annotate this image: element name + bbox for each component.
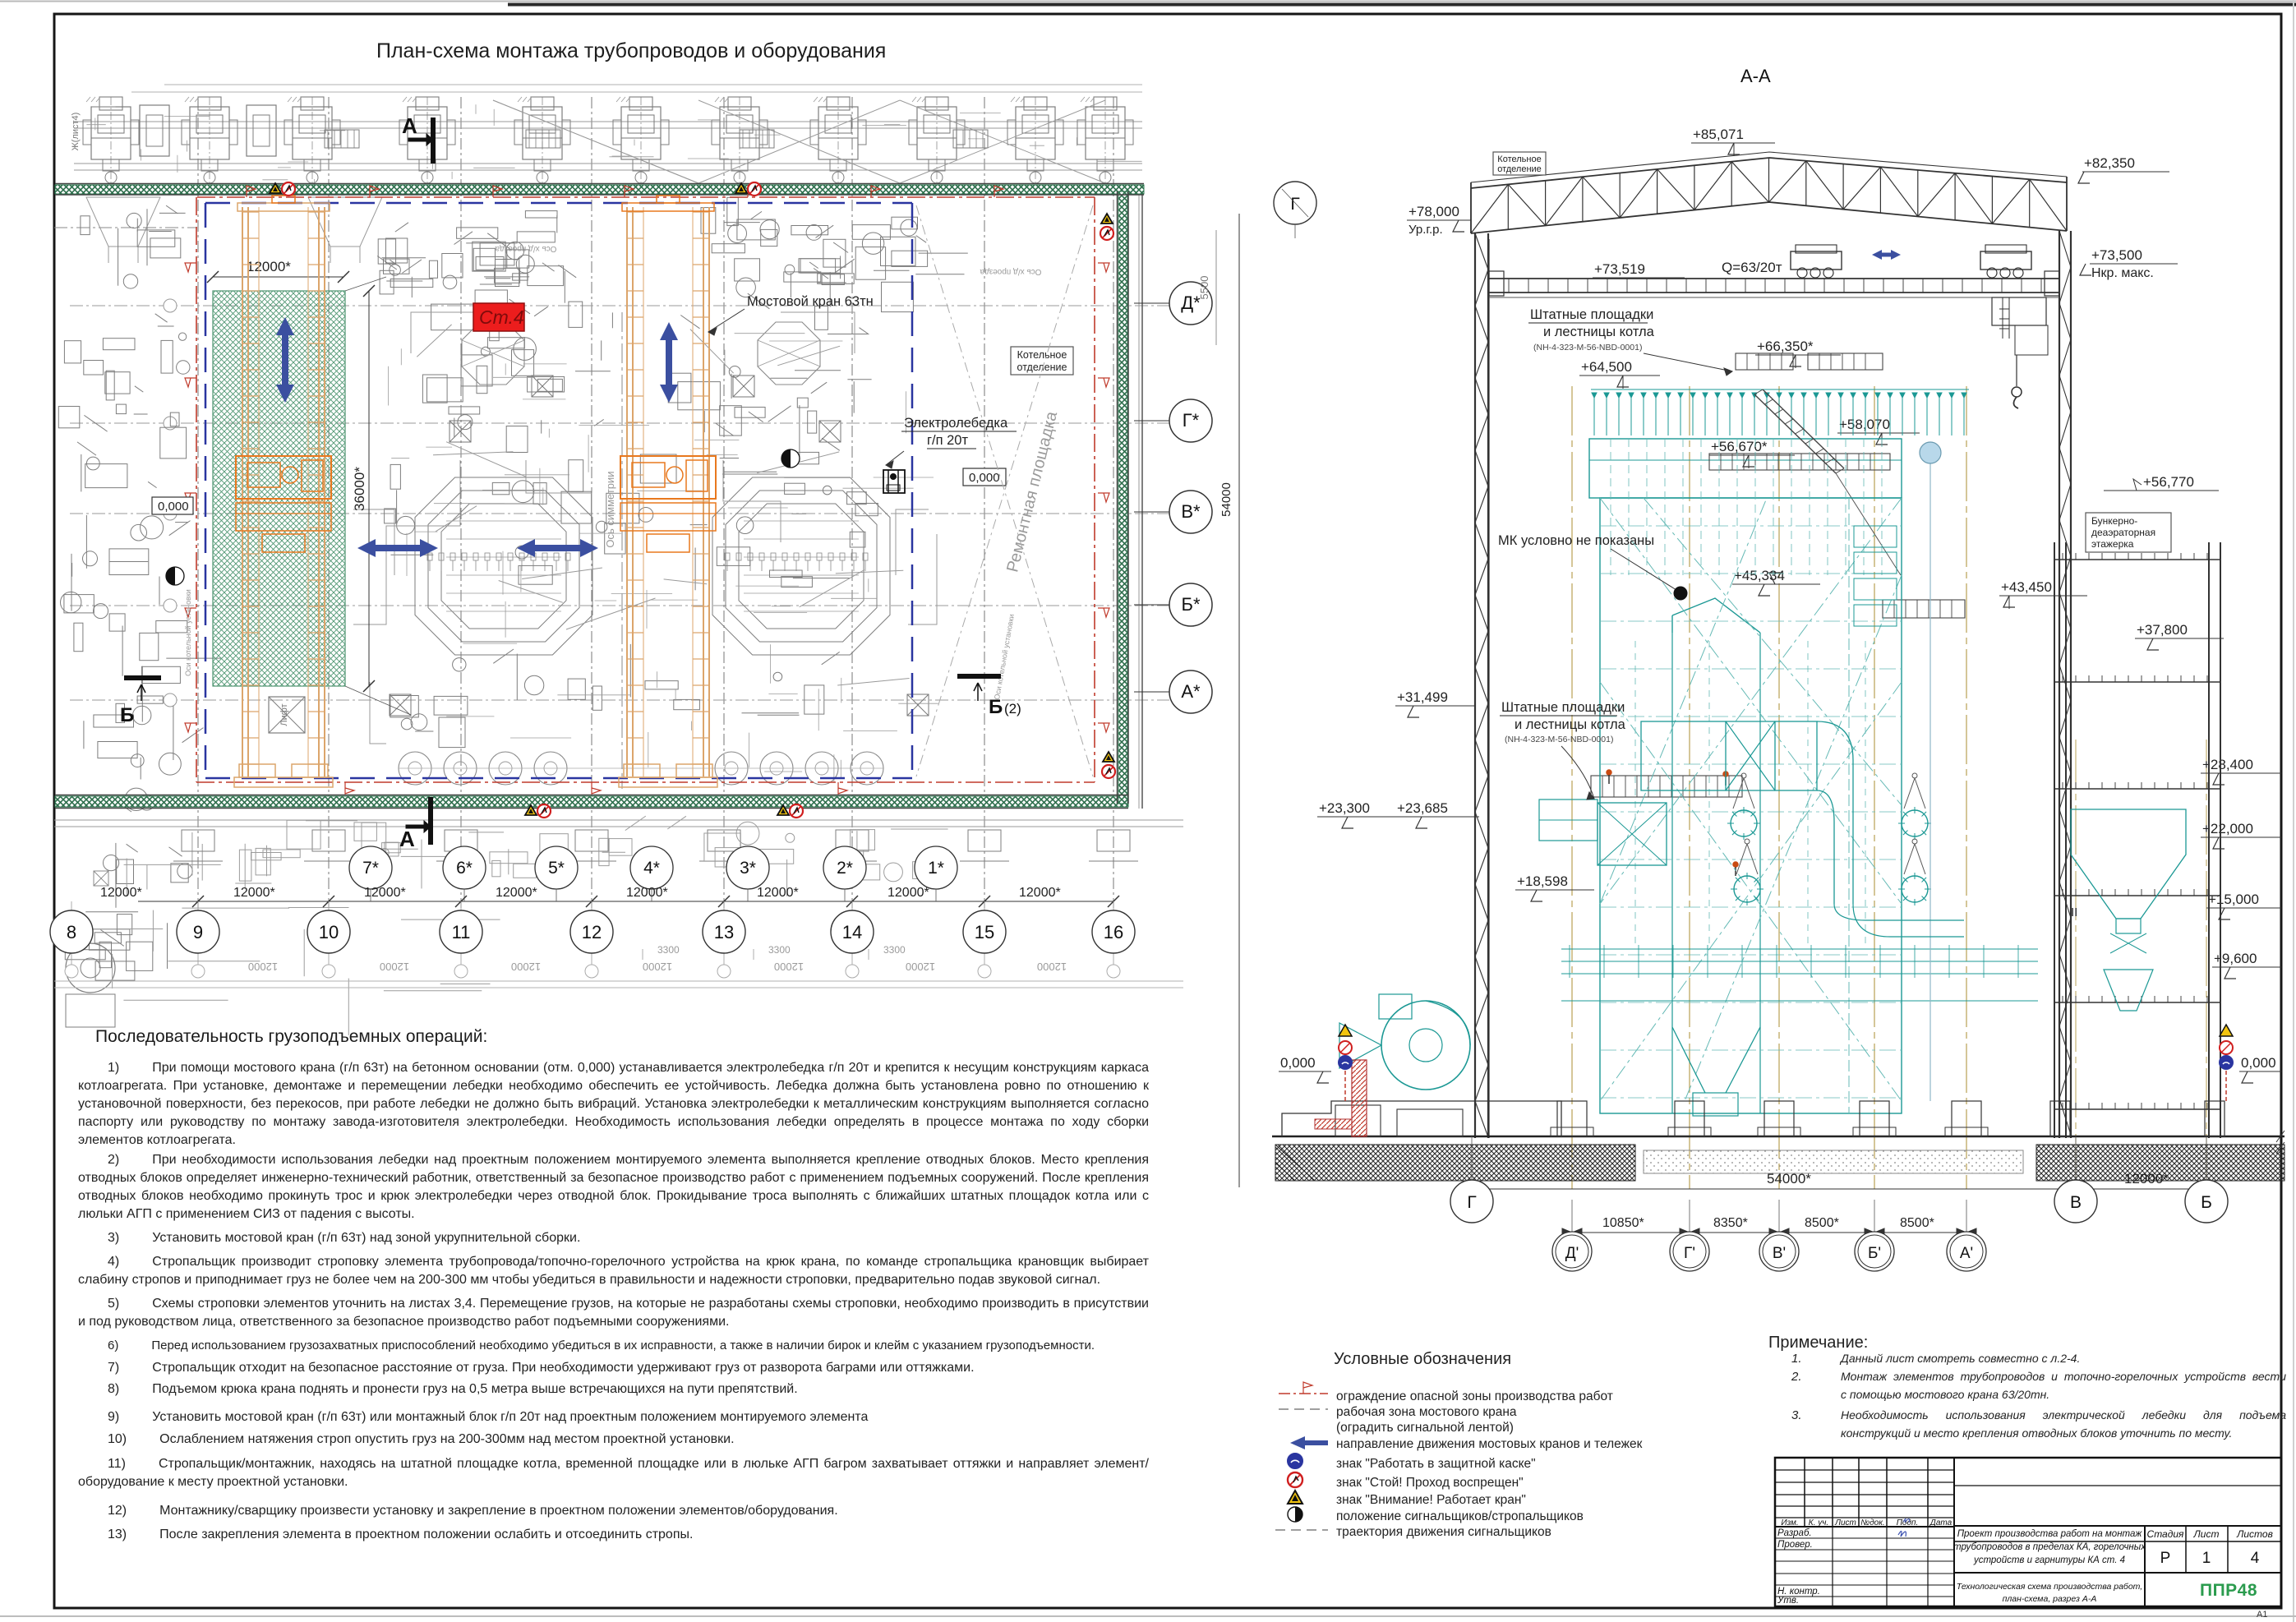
svg-text:Провер.: Провер. (1777, 1540, 1813, 1550)
svg-text:10850*: 10850* (1602, 1216, 1644, 1230)
svg-text:3300: 3300 (883, 944, 906, 956)
svg-text:положение сигнальщиков/стропал: положение сигнальщиков/стропальщиков (1336, 1509, 1584, 1523)
svg-text:14: 14 (842, 922, 862, 942)
svg-text:Стадия: Стадия (2147, 1528, 2185, 1540)
svg-text:В': В' (1773, 1245, 1786, 1262)
svg-text:12000*: 12000* (888, 886, 929, 900)
svg-text:8: 8 (67, 922, 76, 942)
svg-text:+66,350*: +66,350* (1757, 339, 1814, 354)
svg-text:+22,000: +22,000 (2202, 821, 2253, 836)
svg-text:Д': Д' (1565, 1245, 1579, 1262)
svg-text:Р: Р (2160, 1550, 2171, 1567)
svg-text:Утв.: Утв. (1777, 1596, 1799, 1606)
svg-text:+45,334: +45,334 (1734, 568, 1785, 583)
svg-text:Г': Г' (1684, 1245, 1695, 1262)
svg-text:Q=63/20т: Q=63/20т (1722, 260, 1782, 275)
svg-text:Примечание:: Примечание: (1768, 1334, 1868, 1352)
svg-text:12000*: 12000* (626, 886, 668, 900)
svg-text:Б*: Б* (1182, 594, 1201, 615)
svg-text:12000: 12000 (774, 961, 804, 973)
svg-text:отделение: отделение (1497, 164, 1542, 174)
svg-text:(оградить сигнальной лентой): (оградить сигнальной лентой) (1336, 1421, 1514, 1435)
svg-text:3300: 3300 (768, 944, 791, 956)
svg-text:А: А (399, 827, 415, 851)
svg-text:54000: 54000 (1219, 482, 1233, 517)
svg-text:Ось симметрии: Ось симметрии (604, 471, 616, 547)
svg-text:знак "Работать в защитной каск: знак "Работать в защитной каске" (1336, 1457, 1536, 1471)
svg-text:+73,519: +73,519 (1594, 261, 1645, 277)
svg-text:Изм.: Изм. (1781, 1518, 1798, 1528)
svg-text:Б: Б (120, 704, 134, 726)
svg-text:План-схема монтажа трубопровод: План-схема монтажа трубопроводов и обору… (376, 39, 886, 62)
svg-text:ограждение опасной зоны произв: ограждение опасной зоны производства раб… (1336, 1389, 1613, 1403)
svg-text:II: II (2071, 905, 2077, 919)
svg-text:+85,071: +85,071 (1693, 127, 1744, 142)
svg-text:Условные обозначения: Условные обозначения (1334, 1350, 1511, 1368)
svg-text:Электролебедка: Электролебедка (904, 416, 1008, 431)
svg-text:12000: 12000 (643, 961, 672, 973)
svg-text:12000*: 12000* (100, 886, 142, 900)
svg-text:Дата: Дата (1929, 1518, 1953, 1528)
svg-text:8500*: 8500* (1805, 1216, 1839, 1230)
svg-text:2*: 2* (837, 859, 853, 878)
svg-text:знак "Внимание! Работает кран": знак "Внимание! Работает кран" (1336, 1493, 1526, 1507)
svg-text:+37,800: +37,800 (2137, 622, 2188, 638)
svg-text:8500*: 8500* (1900, 1216, 1934, 1230)
svg-text:Ось х/д проезда: Ось х/д проезда (495, 244, 556, 253)
svg-text:А': А' (1960, 1245, 1973, 1262)
svg-text:Штатные площадки: Штатные площадки (1530, 307, 1653, 322)
svg-text:+23,685: +23,685 (1397, 800, 1448, 816)
svg-text:(NH-4-323-M-56-NBD-0001): (NH-4-323-M-56-NBD-0001) (1533, 343, 1642, 353)
svg-text:4*: 4* (643, 859, 660, 878)
svg-text:Лист: Лист (2193, 1528, 2220, 1540)
svg-text:Оси котельной установки: Оси котельной установки (184, 589, 192, 676)
svg-text:+58,070: +58,070 (1839, 417, 1890, 432)
svg-text:11: 11 (452, 922, 471, 942)
svg-text:+18,598: +18,598 (1517, 873, 1568, 889)
svg-text:Проект производства работ на м: Проект производства работ на монтаж (1957, 1529, 2143, 1539)
svg-text:12000: 12000 (248, 961, 278, 973)
svg-text:МК условно не показаны: МК условно не показаны (1498, 533, 1654, 548)
svg-text:В*: В* (1181, 501, 1201, 522)
svg-text:13: 13 (714, 922, 734, 942)
svg-text:рабочая зона мостового крана: рабочая зона мостового крана (1336, 1405, 1517, 1419)
svg-text:Котельное: Котельное (1017, 349, 1067, 361)
svg-text:+73,500: +73,500 (2091, 247, 2142, 263)
svg-text:+23,300: +23,300 (1319, 800, 1370, 816)
svg-text:12000*: 12000* (757, 886, 799, 900)
svg-text:0,000: 0,000 (1280, 1055, 1316, 1071)
svg-text:+31,499: +31,499 (1397, 689, 1448, 705)
svg-text:0,000: 0,000 (2241, 1055, 2276, 1071)
svg-text:12000: 12000 (906, 961, 935, 973)
svg-text:траектория движения сигнальщик: траектория движения сигнальщиков (1336, 1525, 1551, 1539)
svg-text:А*: А* (1181, 681, 1201, 702)
svg-text:Бункерно-: Бункерно- (2091, 515, 2137, 527)
svg-text:10: 10 (319, 922, 339, 942)
svg-text:12000: 12000 (511, 961, 541, 973)
svg-text:Нкр. макс.: Нкр. макс. (2091, 266, 2154, 280)
svg-text:5500: 5500 (1198, 276, 1210, 300)
svg-text:Б: Б (989, 696, 1003, 718)
svg-text:12000*: 12000* (2124, 1171, 2169, 1187)
svg-text:Г: Г (1467, 1193, 1476, 1212)
svg-text:А: А (402, 113, 417, 138)
svg-text:12000*: 12000* (247, 259, 291, 274)
svg-text:Оси котельной установки: Оси котельной установки (993, 614, 1016, 701)
svg-text:Штатные площадки: Штатные площадки (1501, 700, 1625, 715)
svg-text:12000: 12000 (380, 961, 409, 973)
svg-text:36000*: 36000* (352, 467, 367, 511)
svg-text:Г*: Г* (1183, 410, 1200, 431)
svg-text:0,000: 0,000 (158, 500, 189, 514)
svg-text:знак "Стой! Проход воспрещен": знак "Стой! Проход воспрещен" (1336, 1476, 1524, 1490)
svg-text:12000*: 12000* (364, 886, 406, 900)
svg-text:1*: 1* (928, 859, 944, 878)
svg-text:направление движения мостовых: направление движения мостовых кранов и т… (1336, 1437, 1643, 1451)
svg-text:Технологическая схема производ: Технологическая схема производства работ… (1957, 1582, 2142, 1592)
svg-text:Б: Б (2201, 1193, 2212, 1212)
svg-text:и лестницы котла: и лестницы котла (1515, 717, 1626, 732)
svg-text:+43,450: +43,450 (2001, 579, 2052, 595)
svg-text:5*: 5* (548, 859, 565, 878)
svg-text:6*: 6* (456, 859, 473, 878)
svg-text:54000*: 54000* (1767, 1171, 1811, 1187)
svg-text:12: 12 (582, 922, 602, 942)
svg-text:15: 15 (975, 922, 994, 942)
svg-text:Ось х/д проезда: Ось х/д проезда (980, 267, 1041, 276)
svg-text:Мостовой кран 63тн: Мостовой кран 63тн (747, 294, 874, 309)
svg-text:+28,400: +28,400 (2202, 757, 2253, 772)
svg-text:Ж(лист4): Ж(лист4) (71, 113, 81, 151)
svg-text:А1: А1 (2257, 1610, 2267, 1620)
svg-text:К. уч.: К. уч. (1809, 1518, 1828, 1528)
svg-text:12000*: 12000* (496, 886, 537, 900)
svg-text:г/п 20т: г/п 20т (927, 433, 968, 448)
svg-text:3300: 3300 (657, 944, 680, 956)
svg-text:и лестницы котла: и лестницы котла (1543, 325, 1655, 339)
svg-text:0,000: 0,000 (969, 471, 1000, 485)
svg-text:А-А: А-А (1740, 66, 1771, 86)
svg-text:деаэраторная: деаэраторная (2091, 527, 2155, 538)
svg-text:план-схема, разрез А-А: план-схема, разрез А-А (2003, 1594, 2097, 1604)
svg-text:Листов: Листов (2236, 1528, 2273, 1540)
svg-text:+78,000: +78,000 (1408, 204, 1459, 219)
svg-text:Разраб.: Разраб. (1777, 1528, 1812, 1538)
svg-text:+64,500: +64,500 (1581, 359, 1632, 375)
svg-text:7*: 7* (362, 859, 379, 878)
svg-text:8350*: 8350* (1713, 1216, 1748, 1230)
svg-text:(NH-4-323-M-56-NBD-0001): (NH-4-323-M-56-NBD-0001) (1505, 735, 1613, 744)
svg-text:Лист: Лист (1834, 1518, 1856, 1528)
svg-text:Ур.г.р.: Ур.г.р. (1408, 223, 1443, 237)
svg-text:12000: 12000 (1037, 961, 1067, 973)
svg-text:Котельное: Котельное (1497, 154, 1541, 164)
svg-text:ППР48: ППР48 (2200, 1581, 2257, 1600)
svg-text:12000*: 12000* (233, 886, 275, 900)
svg-text:1: 1 (2202, 1550, 2211, 1567)
svg-text:этажерка: этажерка (2091, 538, 2134, 550)
svg-text:Г: Г (1290, 195, 1299, 214)
svg-text:4: 4 (2251, 1550, 2260, 1567)
svg-text:устройств и гарнитуры КА ст. 4: устройств и гарнитуры КА ст. 4 (1973, 1555, 2125, 1565)
svg-text:12000*: 12000* (1019, 886, 1061, 900)
svg-text:3*: 3* (740, 859, 756, 878)
svg-text:Ст.4: Ст.4 (479, 306, 524, 328)
svg-text:Лифт: Лифт (279, 703, 289, 726)
svg-text:16: 16 (1104, 922, 1123, 942)
svg-text:Ремонтная площадка: Ремонтная площадка (1003, 409, 1061, 574)
svg-text:Б': Б' (1868, 1245, 1881, 1262)
svg-text:№док.: №док. (1860, 1518, 1884, 1528)
svg-text:В: В (2070, 1193, 2082, 1212)
svg-text:(2): (2) (1004, 701, 1021, 717)
svg-text:трубопроводов в пределах КА, г: трубопроводов в пределах КА, горелочных (1953, 1542, 2146, 1552)
svg-text:9: 9 (193, 922, 203, 942)
svg-text:+82,350: +82,350 (2084, 155, 2135, 171)
svg-text:+56,770: +56,770 (2143, 474, 2194, 490)
svg-text:+15,000: +15,000 (2208, 892, 2259, 907)
